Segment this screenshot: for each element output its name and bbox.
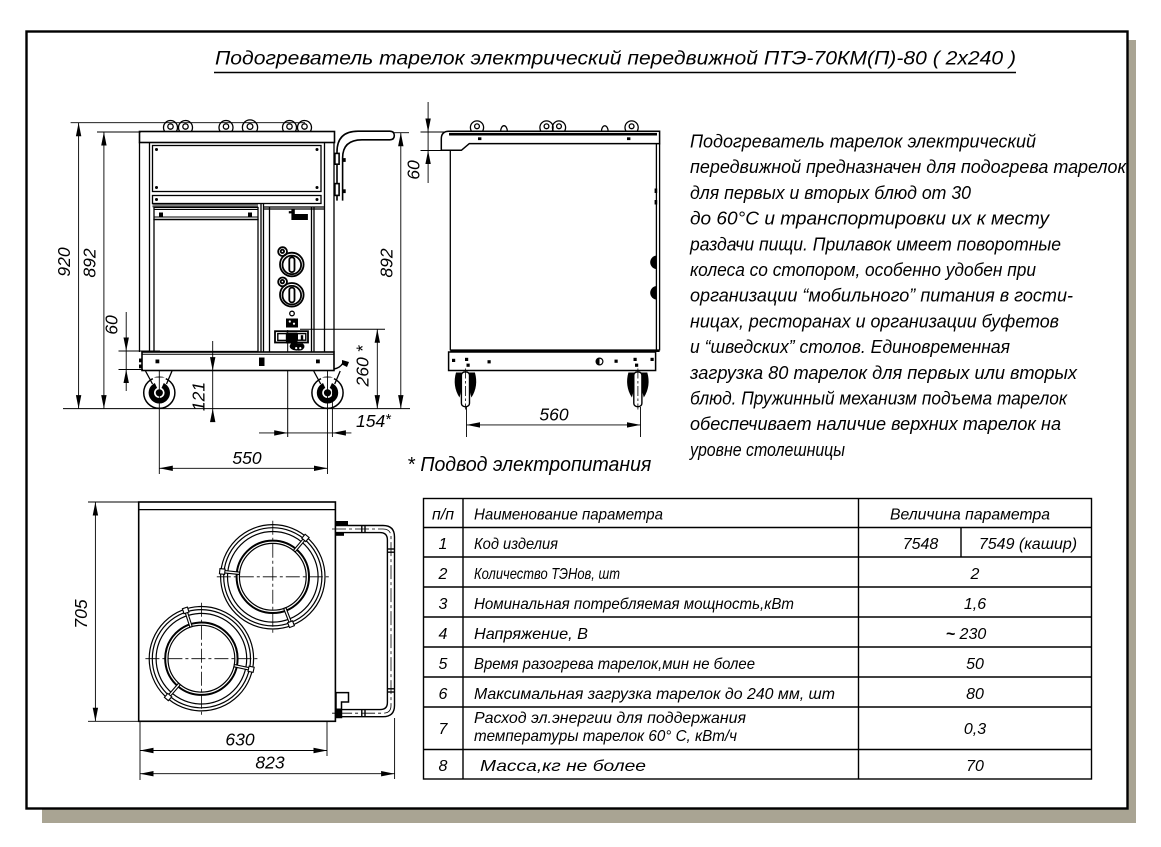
svg-text:Масса,кг не более: Масса,кг не более xyxy=(480,758,646,775)
svg-text:2: 2 xyxy=(438,566,448,583)
svg-text:п/п: п/п xyxy=(432,507,454,524)
svg-text:Подогреватель тарелок электрич: Подогреватель тарелок электрический пере… xyxy=(215,49,1016,70)
svg-text:70: 70 xyxy=(966,758,984,775)
svg-text:колеса со стопором, особенно у: колеса со стопором, особенно удобен при xyxy=(690,260,1036,280)
svg-text:60: 60 xyxy=(404,160,424,180)
svg-text:раздачи пищи. Прилавок имеет п: раздачи пищи. Прилавок имеет поворотные xyxy=(689,234,1061,254)
svg-text:Максимальная загрузка тарелок: Максимальная загрузка тарелок до 240 мм,… xyxy=(474,686,835,703)
svg-text:121: 121 xyxy=(189,382,209,411)
svg-text:Количество ТЭНов, шт: Количество ТЭНов, шт xyxy=(474,566,620,583)
svg-text:Номинальная потребляемая мощно: Номинальная потребляемая мощность,кВт xyxy=(474,596,794,613)
svg-text:50: 50 xyxy=(966,656,984,673)
svg-text:Код изделия: Код изделия xyxy=(474,536,558,553)
svg-text:5: 5 xyxy=(439,656,448,673)
svg-text:550: 550 xyxy=(232,448,261,468)
svg-text:загрузка 80 тарелок для первых: загрузка 80 тарелок для первых или вторы… xyxy=(689,363,1078,383)
svg-text:80: 80 xyxy=(966,686,984,703)
svg-text:630: 630 xyxy=(225,730,254,750)
svg-text:обеспечивает наличие верхних т: обеспечивает наличие верхних тарелок на xyxy=(690,414,1061,434)
svg-text:организации “мобильного” питан: организации “мобильного” питания в гости… xyxy=(690,286,1073,306)
svg-text:560: 560 xyxy=(539,405,568,425)
svg-text:892: 892 xyxy=(377,248,397,277)
svg-text:Подогреватель тарелок электрич: Подогреватель тарелок электрический xyxy=(690,132,1036,152)
svg-text:920: 920 xyxy=(54,247,74,276)
svg-text:ницах, ресторанах и организаци: ницах, ресторанах и организации буфетов xyxy=(690,311,1059,331)
svg-text:8: 8 xyxy=(439,758,448,775)
svg-text:60: 60 xyxy=(102,315,122,335)
svg-text:* Подвод электропитания: * Подвод электропитания xyxy=(407,454,652,476)
svg-text:2: 2 xyxy=(970,566,980,583)
svg-text:1,6: 1,6 xyxy=(964,596,986,613)
svg-text:4: 4 xyxy=(439,626,448,643)
svg-text:7549 (кашир): 7549 (кашир) xyxy=(979,536,1077,553)
svg-text:892: 892 xyxy=(80,248,100,277)
svg-text:Расход эл.энергии для поддержа: Расход эл.энергии для поддержания xyxy=(474,710,746,727)
svg-text:для первых и вторых блюд от 30: для первых и вторых блюд от 30 xyxy=(690,183,971,203)
svg-text:705: 705 xyxy=(71,599,91,628)
svg-text:передвижной предназначен для п: передвижной предназначен для подогрева т… xyxy=(690,157,1127,177)
svg-text:уровне столешницы: уровне столешницы xyxy=(688,440,845,460)
svg-text:1: 1 xyxy=(439,536,448,553)
svg-text:3: 3 xyxy=(439,596,448,613)
svg-text:0,3: 0,3 xyxy=(964,721,986,738)
svg-text:7548: 7548 xyxy=(903,536,939,553)
svg-text:6: 6 xyxy=(439,686,448,703)
svg-text:154: 154 xyxy=(356,411,385,431)
svg-text:823: 823 xyxy=(255,753,284,773)
svg-text:Наименование параметра: Наименование параметра xyxy=(474,507,663,524)
svg-text:Время разогрева тарелок,мин не: Время разогрева тарелок,мин не более xyxy=(474,656,755,673)
svg-text:Напряжение, В: Напряжение, В xyxy=(474,626,588,643)
svg-text:260 *: 260 * xyxy=(353,344,373,387)
svg-text:блюд. Пружинный механизм подъе: блюд. Пружинный механизм подъема тарелок xyxy=(690,389,1068,409)
svg-text:до 60°С и транспортировки их к: до 60°С и транспортировки их к месту xyxy=(690,209,1051,229)
svg-text:Величина параметра: Величина параметра xyxy=(890,507,1050,524)
svg-text:7: 7 xyxy=(439,721,449,738)
svg-text:температуры тарелок 60° С, кВт: температуры тарелок 60° С, кВт/ч xyxy=(474,728,737,745)
svg-text:~ 230: ~ 230 xyxy=(946,626,987,643)
svg-text:и “шведских” столов. Единоврем: и “шведских” столов. Единовременная xyxy=(690,337,1010,357)
